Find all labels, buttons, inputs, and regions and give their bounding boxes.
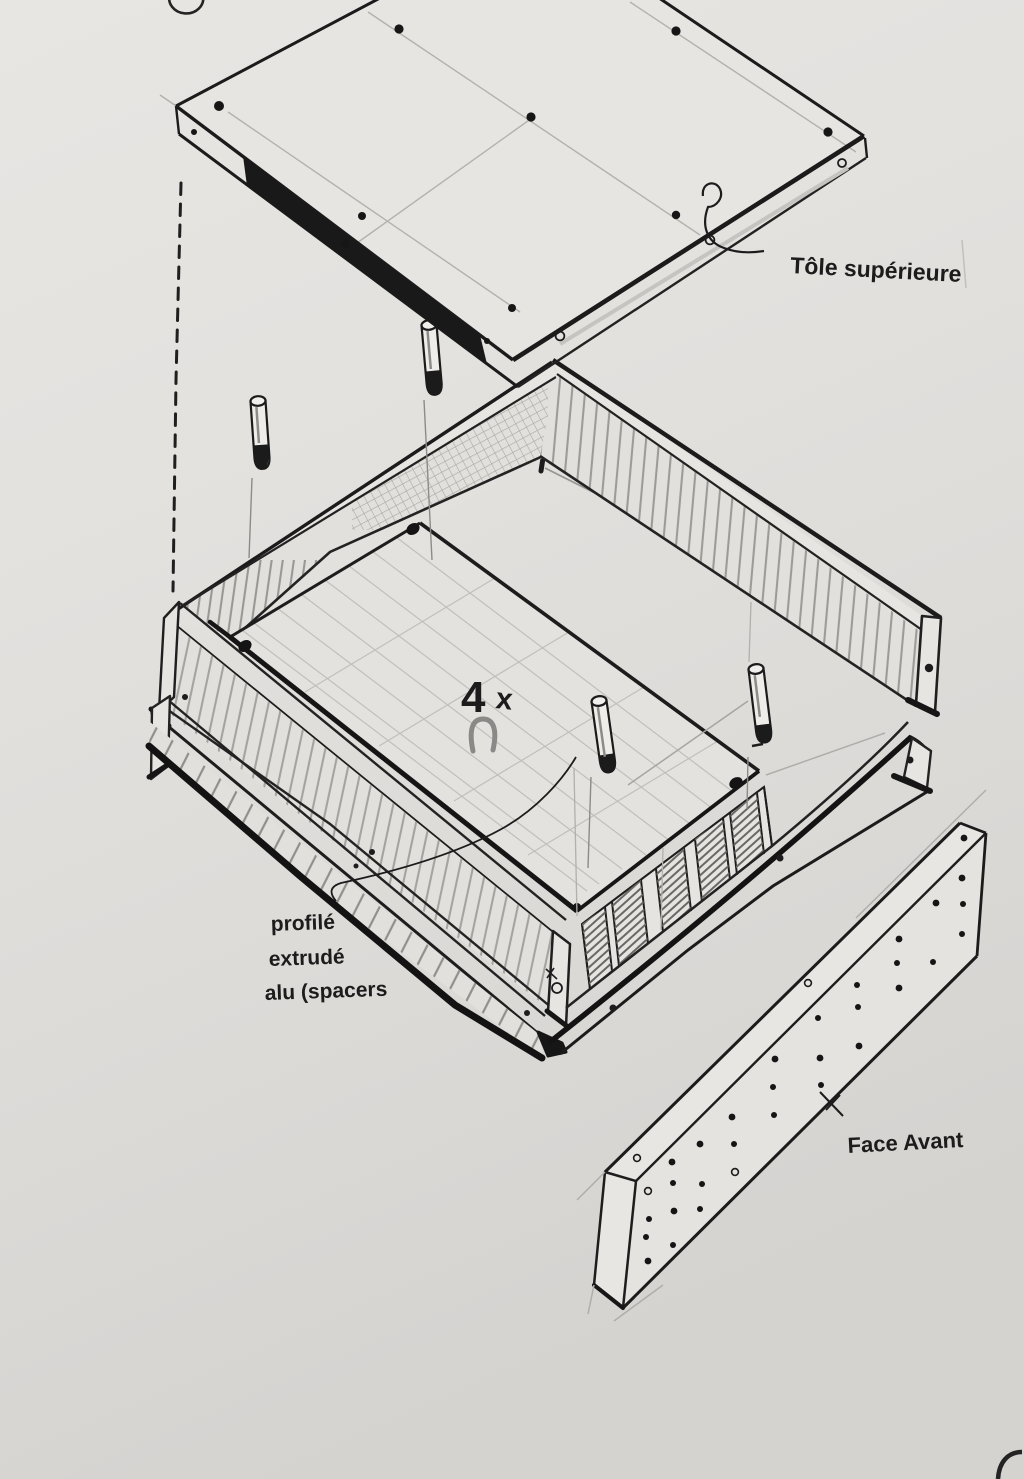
svg-text:alu (spacers: alu (spacers — [264, 978, 387, 1005]
svg-text:extrudé: extrudé — [268, 945, 345, 971]
svg-text:4: 4 — [461, 673, 486, 722]
svg-text:profilé: profilé — [270, 911, 335, 936]
